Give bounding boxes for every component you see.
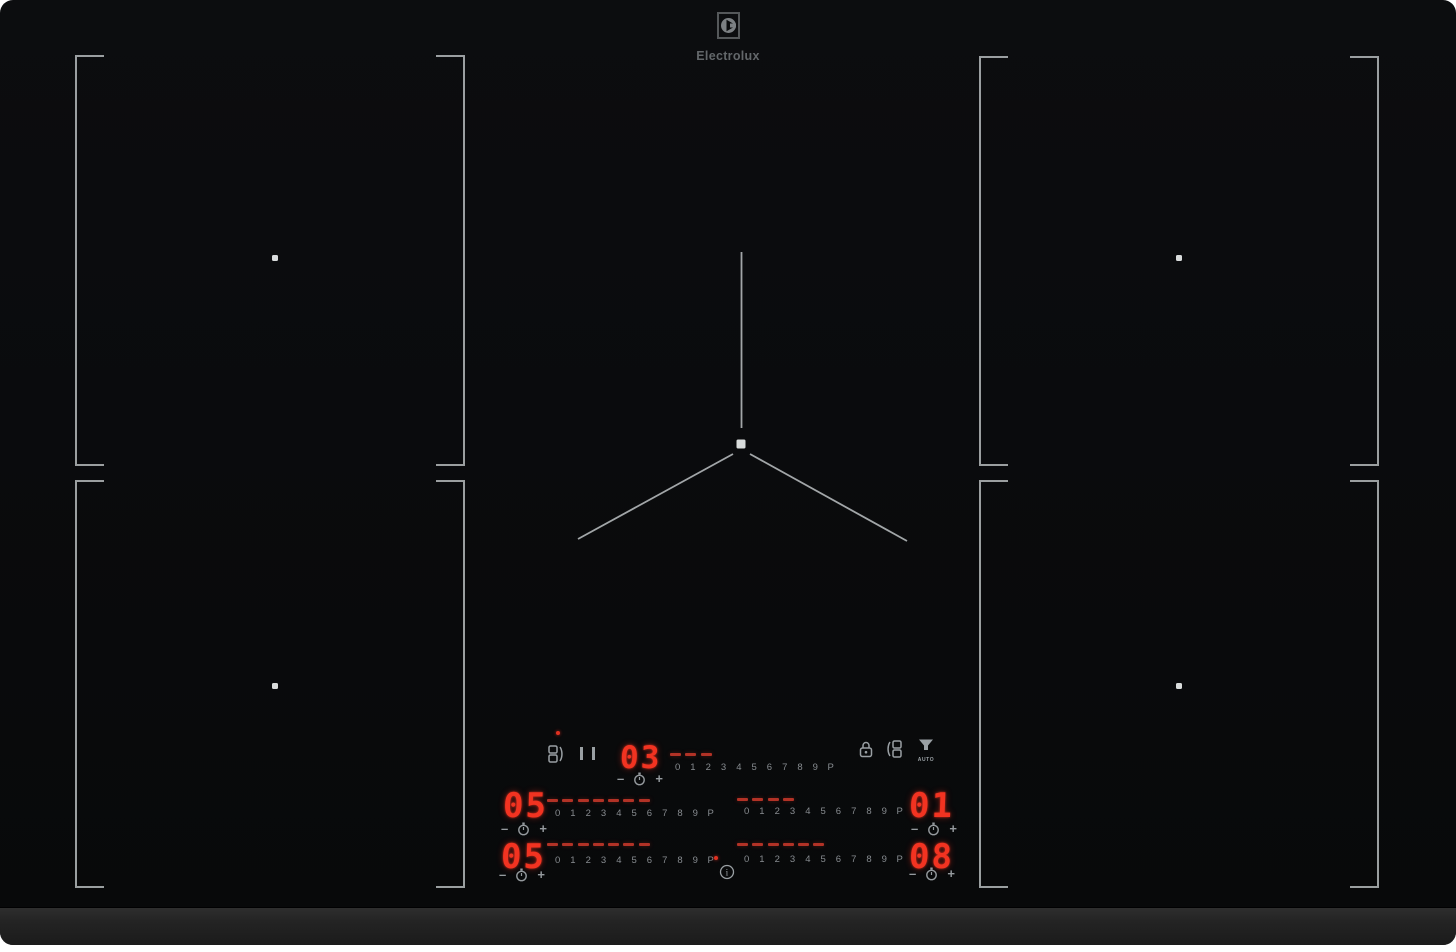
timer-clock-icon[interactable] [927, 822, 940, 836]
slider-number[interactable]: 7 [846, 807, 861, 817]
zone-center-dot [1176, 255, 1182, 261]
slider-number[interactable]: 9 [688, 809, 703, 819]
brand-name: Electrolux [668, 49, 788, 63]
slider-number[interactable]: 5 [746, 763, 761, 773]
zone-bracket-right [433, 55, 465, 466]
slider-number[interactable]: 1 [754, 807, 769, 817]
slider-number[interactable]: 0 [550, 856, 565, 866]
level-dash [562, 843, 573, 846]
slider-number[interactable]: 1 [565, 809, 580, 819]
slider-number[interactable]: 5 [626, 809, 641, 819]
level-dash [578, 843, 589, 846]
slider-number[interactable]: 0 [670, 763, 685, 773]
level-dash [639, 799, 650, 802]
timer-plus-button[interactable]: + [655, 772, 663, 785]
zone-center-dot [1176, 683, 1182, 689]
level-dash [562, 799, 573, 802]
timer-control-mid-right: – + [911, 821, 957, 836]
timer-clock-icon[interactable] [515, 868, 528, 882]
level-dash [608, 799, 619, 802]
cooking-zone-top-left [75, 55, 465, 466]
slider-number[interactable]: 7 [777, 763, 792, 773]
level-dash [768, 798, 779, 801]
slider-number[interactable]: 8 [861, 855, 876, 865]
slider-number[interactable]: 4 [800, 855, 815, 865]
slider-number[interactable]: 4 [800, 807, 815, 817]
zone-bracket-left [75, 55, 107, 466]
timer-control-bottom-right: – + [909, 866, 955, 881]
level-dash [783, 843, 794, 846]
center-zone-marking [570, 244, 915, 549]
slider-number[interactable]: 6 [642, 809, 657, 819]
power-slider-mid-left[interactable]: 0123456789P [550, 809, 718, 819]
level-dash [639, 843, 650, 846]
level-dash [547, 843, 558, 846]
slider-number[interactable]: 3 [785, 855, 800, 865]
timer-plus-button[interactable]: + [949, 822, 957, 835]
zone-bracket-right [1347, 480, 1379, 888]
slider-number[interactable]: 3 [596, 809, 611, 819]
hood-funnel-icon [918, 739, 934, 751]
power-slider-bottom-left[interactable]: 0123456789P [550, 856, 718, 866]
level-dash [752, 843, 763, 846]
induction-hob-surface: Electrolux [0, 0, 1456, 945]
timer-display-center: 03 [619, 743, 661, 774]
slider-number[interactable]: 5 [626, 856, 641, 866]
electrolux-symbol-icon [717, 12, 740, 39]
status-indicator-dot [714, 856, 718, 860]
timer-minus-button[interactable]: – [909, 867, 916, 880]
hood-auto-label: AUTO [913, 757, 939, 763]
power-slider-bottom-right[interactable]: 0123456789P [739, 855, 907, 865]
timer-minus-button[interactable]: – [501, 822, 508, 835]
timer-minus-button[interactable]: – [617, 772, 624, 785]
slider-number[interactable]: 2 [770, 855, 785, 865]
timer-control-center: – + [617, 771, 663, 786]
level-dash [737, 843, 748, 846]
slider-number[interactable]: 9 [877, 855, 892, 865]
slider-number[interactable]: 4 [731, 763, 746, 773]
level-dash [593, 799, 604, 802]
slider-number[interactable]: 6 [831, 855, 846, 865]
slider-number[interactable]: 1 [565, 856, 580, 866]
zone-center-dot [272, 683, 278, 689]
slider-number[interactable]: 9 [877, 807, 892, 817]
bridge-right-icon[interactable] [886, 740, 902, 758]
slider-number[interactable]: 0 [550, 809, 565, 819]
zone-center-dot [737, 440, 746, 449]
level-dash [670, 753, 681, 756]
slider-number[interactable]: 9 [808, 763, 823, 773]
power-level-dashes [670, 753, 716, 756]
bridge-left-icon[interactable] [548, 745, 564, 763]
timer-control-bottom-left: – + [499, 867, 545, 882]
level-dash [685, 753, 696, 756]
slider-number[interactable]: P [703, 809, 718, 819]
slider-number[interactable]: 4 [611, 809, 626, 819]
slider-number[interactable]: 8 [861, 807, 876, 817]
info-icon[interactable]: i [719, 864, 735, 880]
timer-clock-icon[interactable] [925, 867, 938, 881]
slider-number[interactable]: 2 [770, 807, 785, 817]
slider-number[interactable]: 7 [657, 809, 672, 819]
power-slider-center[interactable]: 0123456789P [670, 763, 838, 773]
zone-bracket-left [979, 56, 1011, 466]
level-dash [813, 843, 824, 846]
timer-clock-icon[interactable] [633, 772, 646, 786]
level-dash [737, 798, 748, 801]
timer-control-mid-left: – + [501, 821, 547, 836]
hob-front-edge [0, 908, 1456, 945]
brand-logo: Electrolux [668, 12, 788, 63]
status-indicator-dot [556, 731, 560, 735]
slider-number[interactable]: 6 [762, 763, 777, 773]
slider-number[interactable]: P [892, 807, 907, 817]
zone-bracket-left [979, 480, 1011, 888]
timer-clock-icon[interactable] [517, 822, 530, 836]
timer-minus-button[interactable]: – [499, 868, 506, 881]
slider-number[interactable]: 3 [596, 856, 611, 866]
level-dash [701, 753, 712, 756]
power-slider-mid-right[interactable]: 0123456789P [739, 807, 907, 817]
slider-number[interactable]: 6 [831, 807, 846, 817]
product-photo: Electrolux [0, 0, 1456, 952]
slider-number[interactable]: 4 [611, 856, 626, 866]
cooking-zone-bottom-left [75, 480, 465, 888]
slider-number[interactable]: 8 [672, 856, 687, 866]
slider-number[interactable]: 7 [657, 856, 672, 866]
slider-number[interactable]: 7 [846, 855, 861, 865]
slider-number[interactable]: 6 [642, 856, 657, 866]
zone-bracket-left [75, 480, 107, 888]
timer-display-mid-left: 05 [502, 789, 548, 823]
timer-plus-button[interactable]: + [537, 868, 545, 881]
level-dash [623, 799, 634, 802]
level-dash [752, 798, 763, 801]
slider-number[interactable]: 2 [701, 763, 716, 773]
timer-minus-button[interactable]: – [911, 822, 918, 835]
slider-number[interactable]: 3 [716, 763, 731, 773]
zone-bracket-right [433, 480, 465, 888]
level-dash [593, 843, 604, 846]
slider-number[interactable]: 8 [672, 809, 687, 819]
level-dash [798, 843, 809, 846]
slider-number[interactable]: 0 [739, 855, 754, 865]
slider-number[interactable]: 1 [754, 855, 769, 865]
slider-number[interactable]: 9 [688, 856, 703, 866]
slider-number[interactable]: 3 [785, 807, 800, 817]
slider-number[interactable]: P [892, 855, 907, 865]
level-dash [623, 843, 634, 846]
lock-icon[interactable] [858, 740, 874, 758]
level-dash [547, 799, 558, 802]
level-dash [578, 799, 589, 802]
level-dash [783, 798, 794, 801]
zone-bracket-right [1347, 56, 1379, 466]
power-level-dashes [547, 843, 654, 846]
slider-number[interactable]: 1 [685, 763, 700, 773]
slider-number[interactable]: 0 [739, 807, 754, 817]
pause-icon[interactable] [580, 747, 595, 760]
level-dash [608, 843, 619, 846]
zone-center-dot [272, 255, 278, 261]
timer-plus-button[interactable]: + [539, 822, 547, 835]
slider-number[interactable]: 5 [815, 855, 830, 865]
slider-number[interactable]: 8 [792, 763, 807, 773]
hood-auto-control[interactable]: AUTO [913, 738, 939, 763]
slider-number[interactable]: P [823, 763, 838, 773]
timer-plus-button[interactable]: + [947, 867, 955, 880]
power-level-dashes [737, 798, 798, 801]
slider-number[interactable]: 2 [581, 809, 596, 819]
level-dash [768, 843, 779, 846]
slider-number[interactable]: 5 [815, 807, 830, 817]
info-glyph: i [726, 868, 729, 878]
timer-display-mid-right: 01 [908, 789, 954, 823]
power-level-dashes [737, 843, 829, 846]
power-level-dashes [547, 799, 654, 802]
cooking-zone-top-right [979, 56, 1379, 466]
slider-number[interactable]: 2 [581, 856, 596, 866]
